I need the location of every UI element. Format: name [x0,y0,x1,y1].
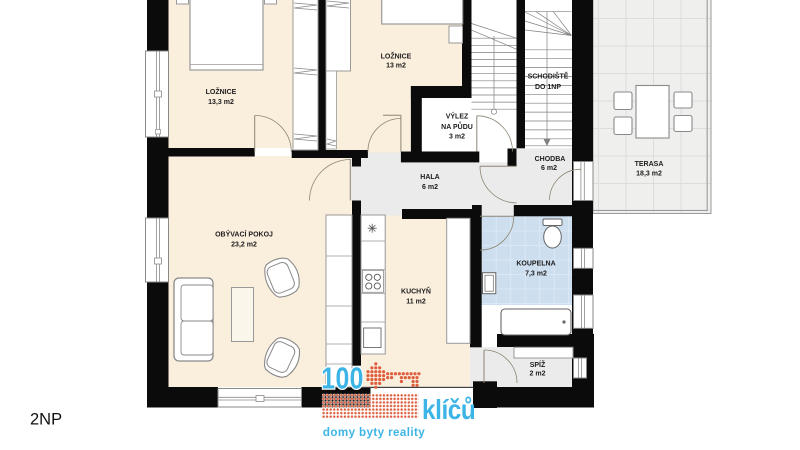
svg-text:18,3 m2: 18,3 m2 [636,171,662,178]
svg-text:6 m2: 6 m2 [422,184,438,191]
svg-text:OBÝVACÍ POKOJ: OBÝVACÍ POKOJ [215,230,273,239]
svg-text:domy byty reality: domy byty reality [323,426,425,439]
svg-text:2NP: 2NP [30,411,62,429]
svg-text:KUCHYŇ: KUCHYŇ [401,287,431,296]
svg-text:LOŽNICE: LOŽNICE [381,52,412,61]
svg-text:DO 1NP: DO 1NP [535,84,561,91]
svg-text:HALA: HALA [420,174,439,181]
svg-text:13,3 m2: 13,3 m2 [208,99,234,106]
svg-text:klíčů: klíčů [422,393,475,425]
svg-text:VÝLEZ: VÝLEZ [446,112,469,121]
svg-text:6 m2: 6 m2 [541,165,557,172]
svg-text:100: 100 [321,361,364,395]
svg-text:SPÍŽ: SPÍŽ [530,360,546,369]
svg-text:23,2 m2: 23,2 m2 [231,242,257,249]
svg-text:7,3 m2: 7,3 m2 [525,271,547,278]
svg-text:3 m2: 3 m2 [449,134,465,141]
svg-text:2 m2: 2 m2 [530,371,546,378]
svg-text:13 m2: 13 m2 [386,63,406,70]
svg-text:SCHODIŠTĚ: SCHODIŠTĚ [528,72,569,81]
svg-text:KOUPELNA: KOUPELNA [516,261,555,268]
svg-text:TERASA: TERASA [635,161,664,168]
svg-text:LOŽNICE: LOŽNICE [206,87,237,96]
svg-text:11 m2: 11 m2 [406,299,426,306]
svg-text:CHODBA: CHODBA [535,156,566,163]
